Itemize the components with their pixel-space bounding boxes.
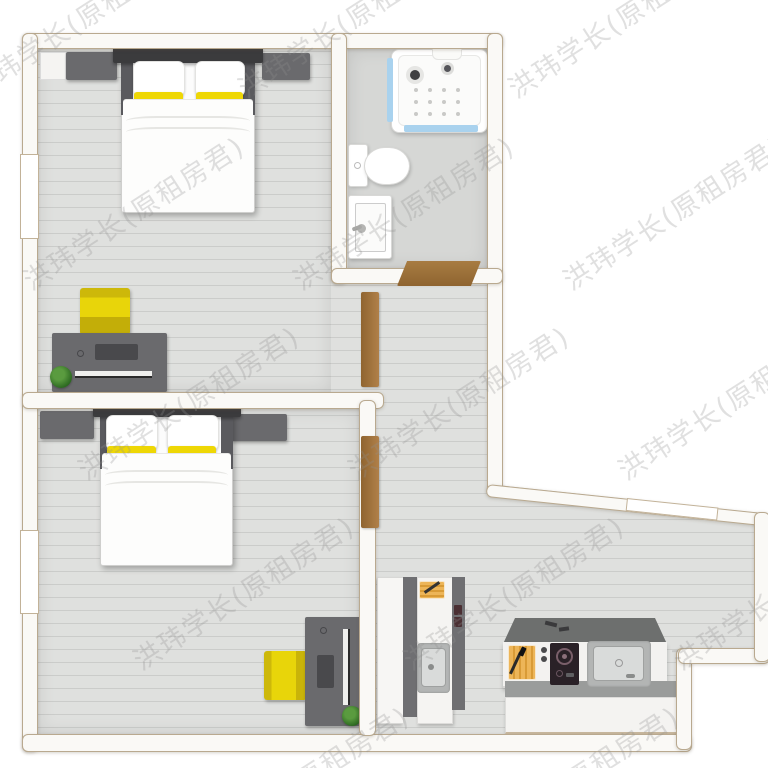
kitchenette-right-panel bbox=[452, 577, 465, 710]
knob bbox=[541, 647, 547, 653]
shower-jet bbox=[456, 112, 460, 116]
shower-jet bbox=[442, 100, 446, 104]
nightstand-left-top bbox=[66, 52, 117, 80]
shower-jet bbox=[428, 112, 432, 116]
hob-burner-small bbox=[556, 670, 563, 677]
hob-burner-center bbox=[562, 654, 567, 659]
floor-plan: 洪玮学长(原租房君)洪玮学长(原租房君)洪玮学长(原租房君)洪玮学长(原租房君)… bbox=[0, 0, 768, 768]
door-bedroom-bottom bbox=[361, 436, 379, 528]
watermark-text: 洪玮学长(原租房君) bbox=[609, 315, 768, 488]
shower-jet bbox=[442, 112, 446, 116]
monitor bbox=[95, 344, 138, 360]
shower-jet bbox=[414, 88, 418, 92]
watermark-text: 洪玮学长(原租房君) bbox=[719, 695, 768, 768]
shower-jet bbox=[442, 88, 446, 92]
nightstand-left-bottom bbox=[40, 411, 94, 439]
wall-right-lower bbox=[754, 512, 768, 662]
island-front bbox=[505, 697, 680, 734]
plant bbox=[50, 366, 72, 388]
nightstand-right-bottom bbox=[231, 414, 287, 441]
shower-glass-left bbox=[387, 58, 393, 122]
duvet-fold bbox=[105, 481, 228, 491]
sink-faucet bbox=[626, 674, 635, 678]
knob bbox=[541, 656, 547, 662]
wall-bottom bbox=[22, 734, 692, 752]
knob bbox=[454, 617, 462, 627]
wall-right-upper bbox=[487, 33, 503, 495]
shower-jet bbox=[414, 112, 418, 116]
knob bbox=[454, 605, 462, 615]
mug bbox=[77, 350, 84, 357]
shower-shelf bbox=[432, 49, 462, 60]
nightstand-right-top bbox=[262, 53, 310, 80]
shower-glass-bottom bbox=[404, 125, 478, 132]
sink-small-faucet bbox=[428, 664, 434, 670]
hob-control bbox=[566, 673, 574, 677]
wall-bedroom-divider bbox=[22, 392, 384, 409]
shower-jet bbox=[414, 100, 418, 104]
office-chair-top bbox=[80, 288, 130, 335]
monitor bbox=[317, 655, 334, 688]
fridge-panel bbox=[377, 577, 404, 724]
shower-head-small-center bbox=[444, 65, 451, 72]
office-chair-bottom bbox=[264, 651, 307, 700]
shower-jet bbox=[428, 100, 432, 104]
shower-tray-inner bbox=[398, 55, 481, 126]
window-bedroom-top bbox=[20, 154, 39, 239]
door-bedroom-top bbox=[361, 292, 379, 387]
duvet-fold bbox=[105, 470, 228, 480]
watermark-text: 洪玮学长(原租房君) bbox=[499, 0, 736, 106]
wardrobe-box bbox=[40, 52, 66, 80]
toilet-bowl bbox=[364, 147, 410, 185]
shower-head-large-center bbox=[410, 70, 420, 80]
wall-bathroom-left bbox=[331, 33, 347, 284]
duvet-fold bbox=[126, 127, 250, 137]
keyboard bbox=[75, 371, 152, 376]
shower-jet bbox=[456, 100, 460, 104]
duvet-fold bbox=[126, 116, 250, 126]
keyboard bbox=[343, 629, 348, 705]
sink-drain bbox=[615, 659, 623, 667]
mug bbox=[320, 627, 327, 634]
window-bedroom-bottom bbox=[20, 530, 39, 614]
watermark-text: 洪玮学长(原租房君) bbox=[554, 125, 768, 298]
wall-top bbox=[22, 33, 503, 49]
toilet-flush-button bbox=[354, 162, 361, 169]
door-bathroom bbox=[397, 261, 481, 286]
shower-jet bbox=[456, 88, 460, 92]
kitchenette-left-panel bbox=[403, 577, 417, 717]
shower-jet bbox=[428, 88, 432, 92]
cutting-board-small bbox=[419, 581, 445, 599]
